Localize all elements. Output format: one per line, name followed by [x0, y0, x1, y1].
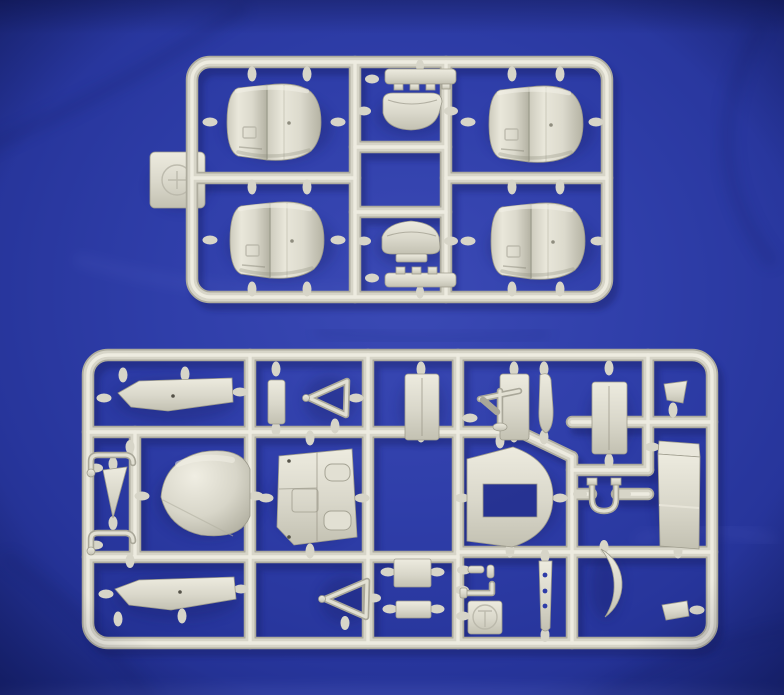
sprue-photograph: [0, 0, 784, 695]
top-shadow-band: [0, 0, 784, 34]
vignette-overlay: [0, 0, 784, 695]
sprue-photo-canvas: [0, 0, 784, 695]
